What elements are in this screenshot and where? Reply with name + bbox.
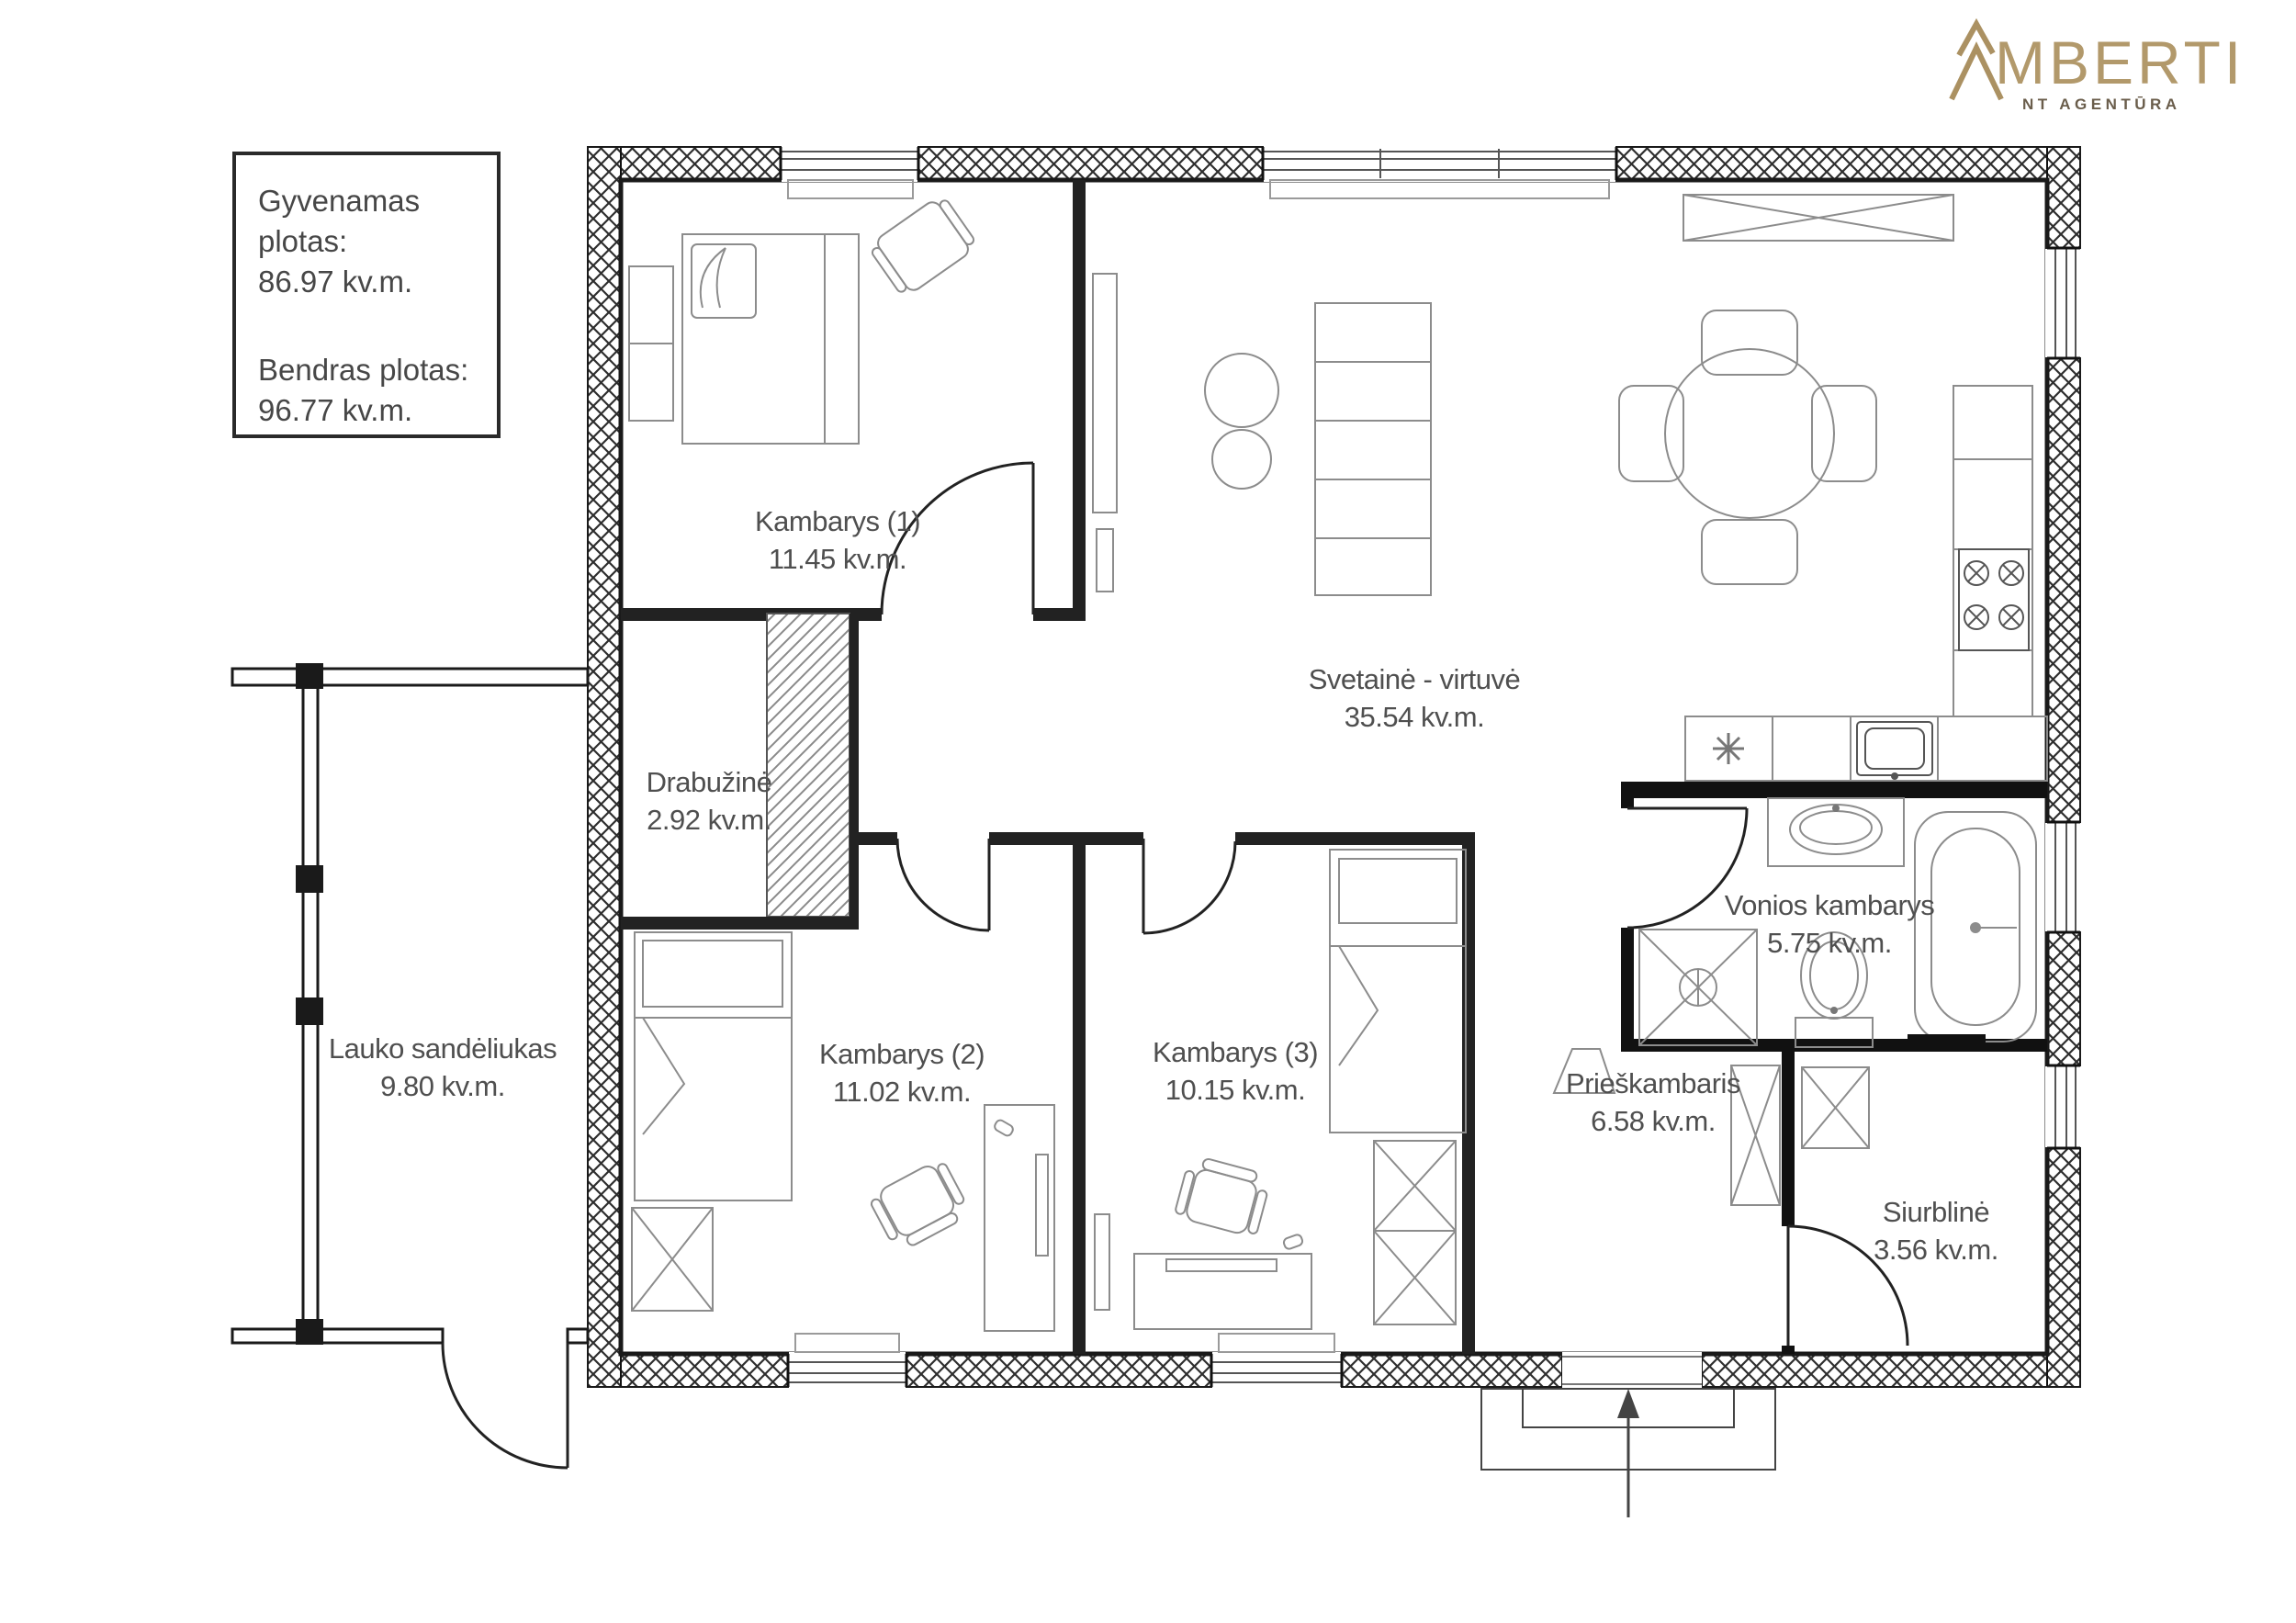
- furniture-kambarys-2: [632, 932, 1054, 1331]
- room-label-kambarys-1: Kambarys (1) 11.45 kv.m.: [755, 502, 920, 578]
- interior-walls: [621, 180, 2047, 1354]
- kitchen-fixture-asterisk-icon: [1713, 733, 1744, 764]
- total-area-value: 96.77 kv.m.: [258, 390, 497, 431]
- area-info-box: Gyvenamas plotas: 86.97 kv.m. Bendras pl…: [232, 152, 501, 438]
- room-label-lauko-sandeliukas: Lauko sandėliukas 9.80 kv.m.: [329, 1030, 557, 1105]
- room-label-prieskambaris: Prieškambaris 6.58 kv.m.: [1566, 1065, 1740, 1140]
- room-label-siurbline: Siurblinė 3.56 kv.m.: [1874, 1193, 1998, 1268]
- total-area-label: Bendras plotas:: [258, 350, 497, 390]
- logo-chevron-icon: [1947, 18, 2008, 103]
- room-label-kambarys-2: Kambarys (2) 11.02 kv.m.: [819, 1035, 985, 1110]
- room-label-kambarys-3: Kambarys (3) 10.15 kv.m.: [1153, 1033, 1318, 1109]
- furniture-svetaine: [1205, 195, 1953, 595]
- living-area-value: 86.97 kv.m.: [258, 262, 497, 302]
- sink-icon: [1790, 805, 1882, 854]
- floor-plan-page: Gyvenamas plotas: 86.97 kv.m. Bendras pl…: [0, 0, 2296, 1623]
- annex-walls: [232, 663, 588, 1345]
- stove-burner-icons: [1964, 561, 2023, 629]
- entrance-steps: [1481, 1389, 1775, 1517]
- room-label-svetaine-virtuve: Svetainė - virtuvė 35.54 kv.m.: [1309, 660, 1521, 736]
- amberti-logo: AMBERTI NT AGENTŪRA: [1951, 28, 2281, 114]
- room-label-drabuzine: Drabužinė 2.92 kv.m.: [647, 763, 772, 839]
- living-area-label: Gyvenamas plotas:: [258, 181, 497, 262]
- room-label-vonios-kambarys: Vonios kambarys 5.75 kv.m.: [1725, 886, 1935, 962]
